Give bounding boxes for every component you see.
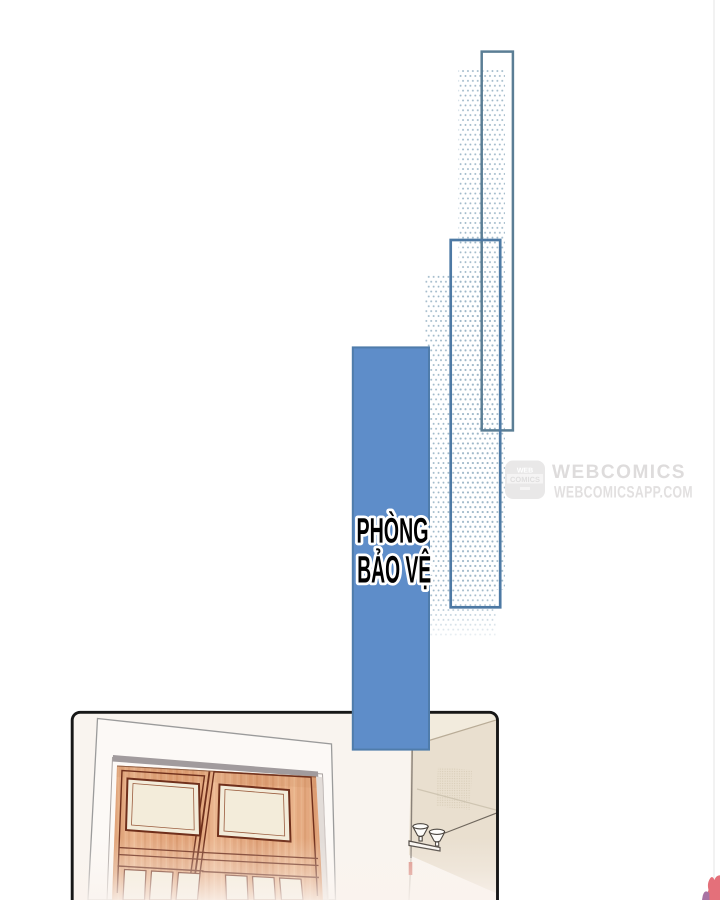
svg-text:COMICS: COMICS: [510, 475, 540, 484]
svg-text:WEBCOMICSAPP.COM: WEBCOMICSAPP.COM: [554, 484, 693, 502]
svg-text:WEB: WEB: [517, 468, 533, 475]
svg-text:WEBCOMICS: WEBCOMICS: [552, 461, 686, 483]
